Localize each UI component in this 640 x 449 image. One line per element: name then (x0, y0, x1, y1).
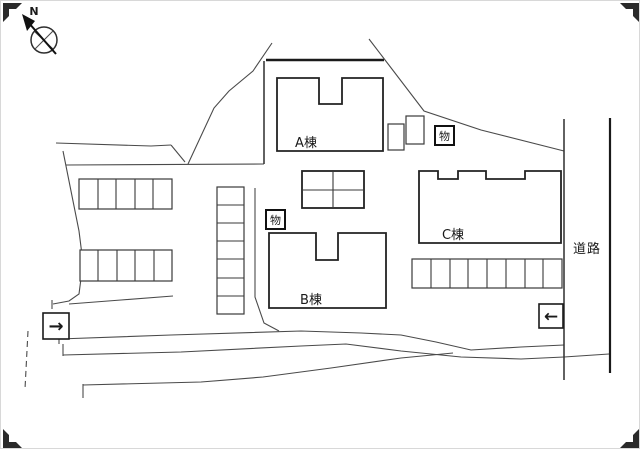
outbuilding-1 (388, 124, 404, 150)
corner-mark-top-right (620, 3, 639, 22)
site-plan-svg: N 道路 A棟 B棟 (1, 1, 640, 449)
parking-left-bottom-row (80, 250, 172, 281)
entry-arrow-right: → (43, 313, 69, 339)
arrow-right-icon: → (48, 316, 63, 337)
site-plan: N 道路 A棟 B棟 (0, 0, 640, 449)
storage-box-near-b-label: 物 (270, 213, 281, 227)
building-a-label: A棟 (295, 136, 317, 151)
corner-mark-top-left (3, 3, 22, 22)
building-b: B棟 (269, 233, 386, 308)
parking-left-top-row (79, 179, 172, 209)
parking-center-column (217, 187, 244, 314)
road-label: 道路 (573, 241, 601, 257)
compass: N (22, 5, 57, 54)
building-a: A棟 (277, 78, 383, 151)
arrow-left-icon: ← (544, 307, 558, 327)
building-b-label: B棟 (300, 293, 322, 308)
small-outbuildings (388, 116, 424, 150)
storage-box-near-a: 物 (435, 126, 454, 145)
parking-right-bottom-row (412, 259, 562, 288)
compass-north-label: N (29, 5, 38, 18)
building-b-outline (269, 233, 386, 308)
outbuilding-2 (406, 116, 424, 144)
road-area: 道路 (564, 118, 610, 380)
building-a-outline (277, 78, 383, 151)
access-road-lines (52, 300, 609, 398)
building-c-outline (419, 171, 561, 243)
storage-box-near-b: 物 (266, 210, 285, 229)
building-c: C棟 (419, 171, 561, 243)
building-c-label: C棟 (442, 228, 464, 243)
entry-arrow-left: ← (539, 304, 563, 328)
center-grid-block (302, 171, 364, 208)
corner-mark-bottom-left (3, 429, 22, 448)
storage-box-near-a-label: 物 (439, 129, 450, 143)
corner-mark-bottom-right (620, 429, 639, 448)
